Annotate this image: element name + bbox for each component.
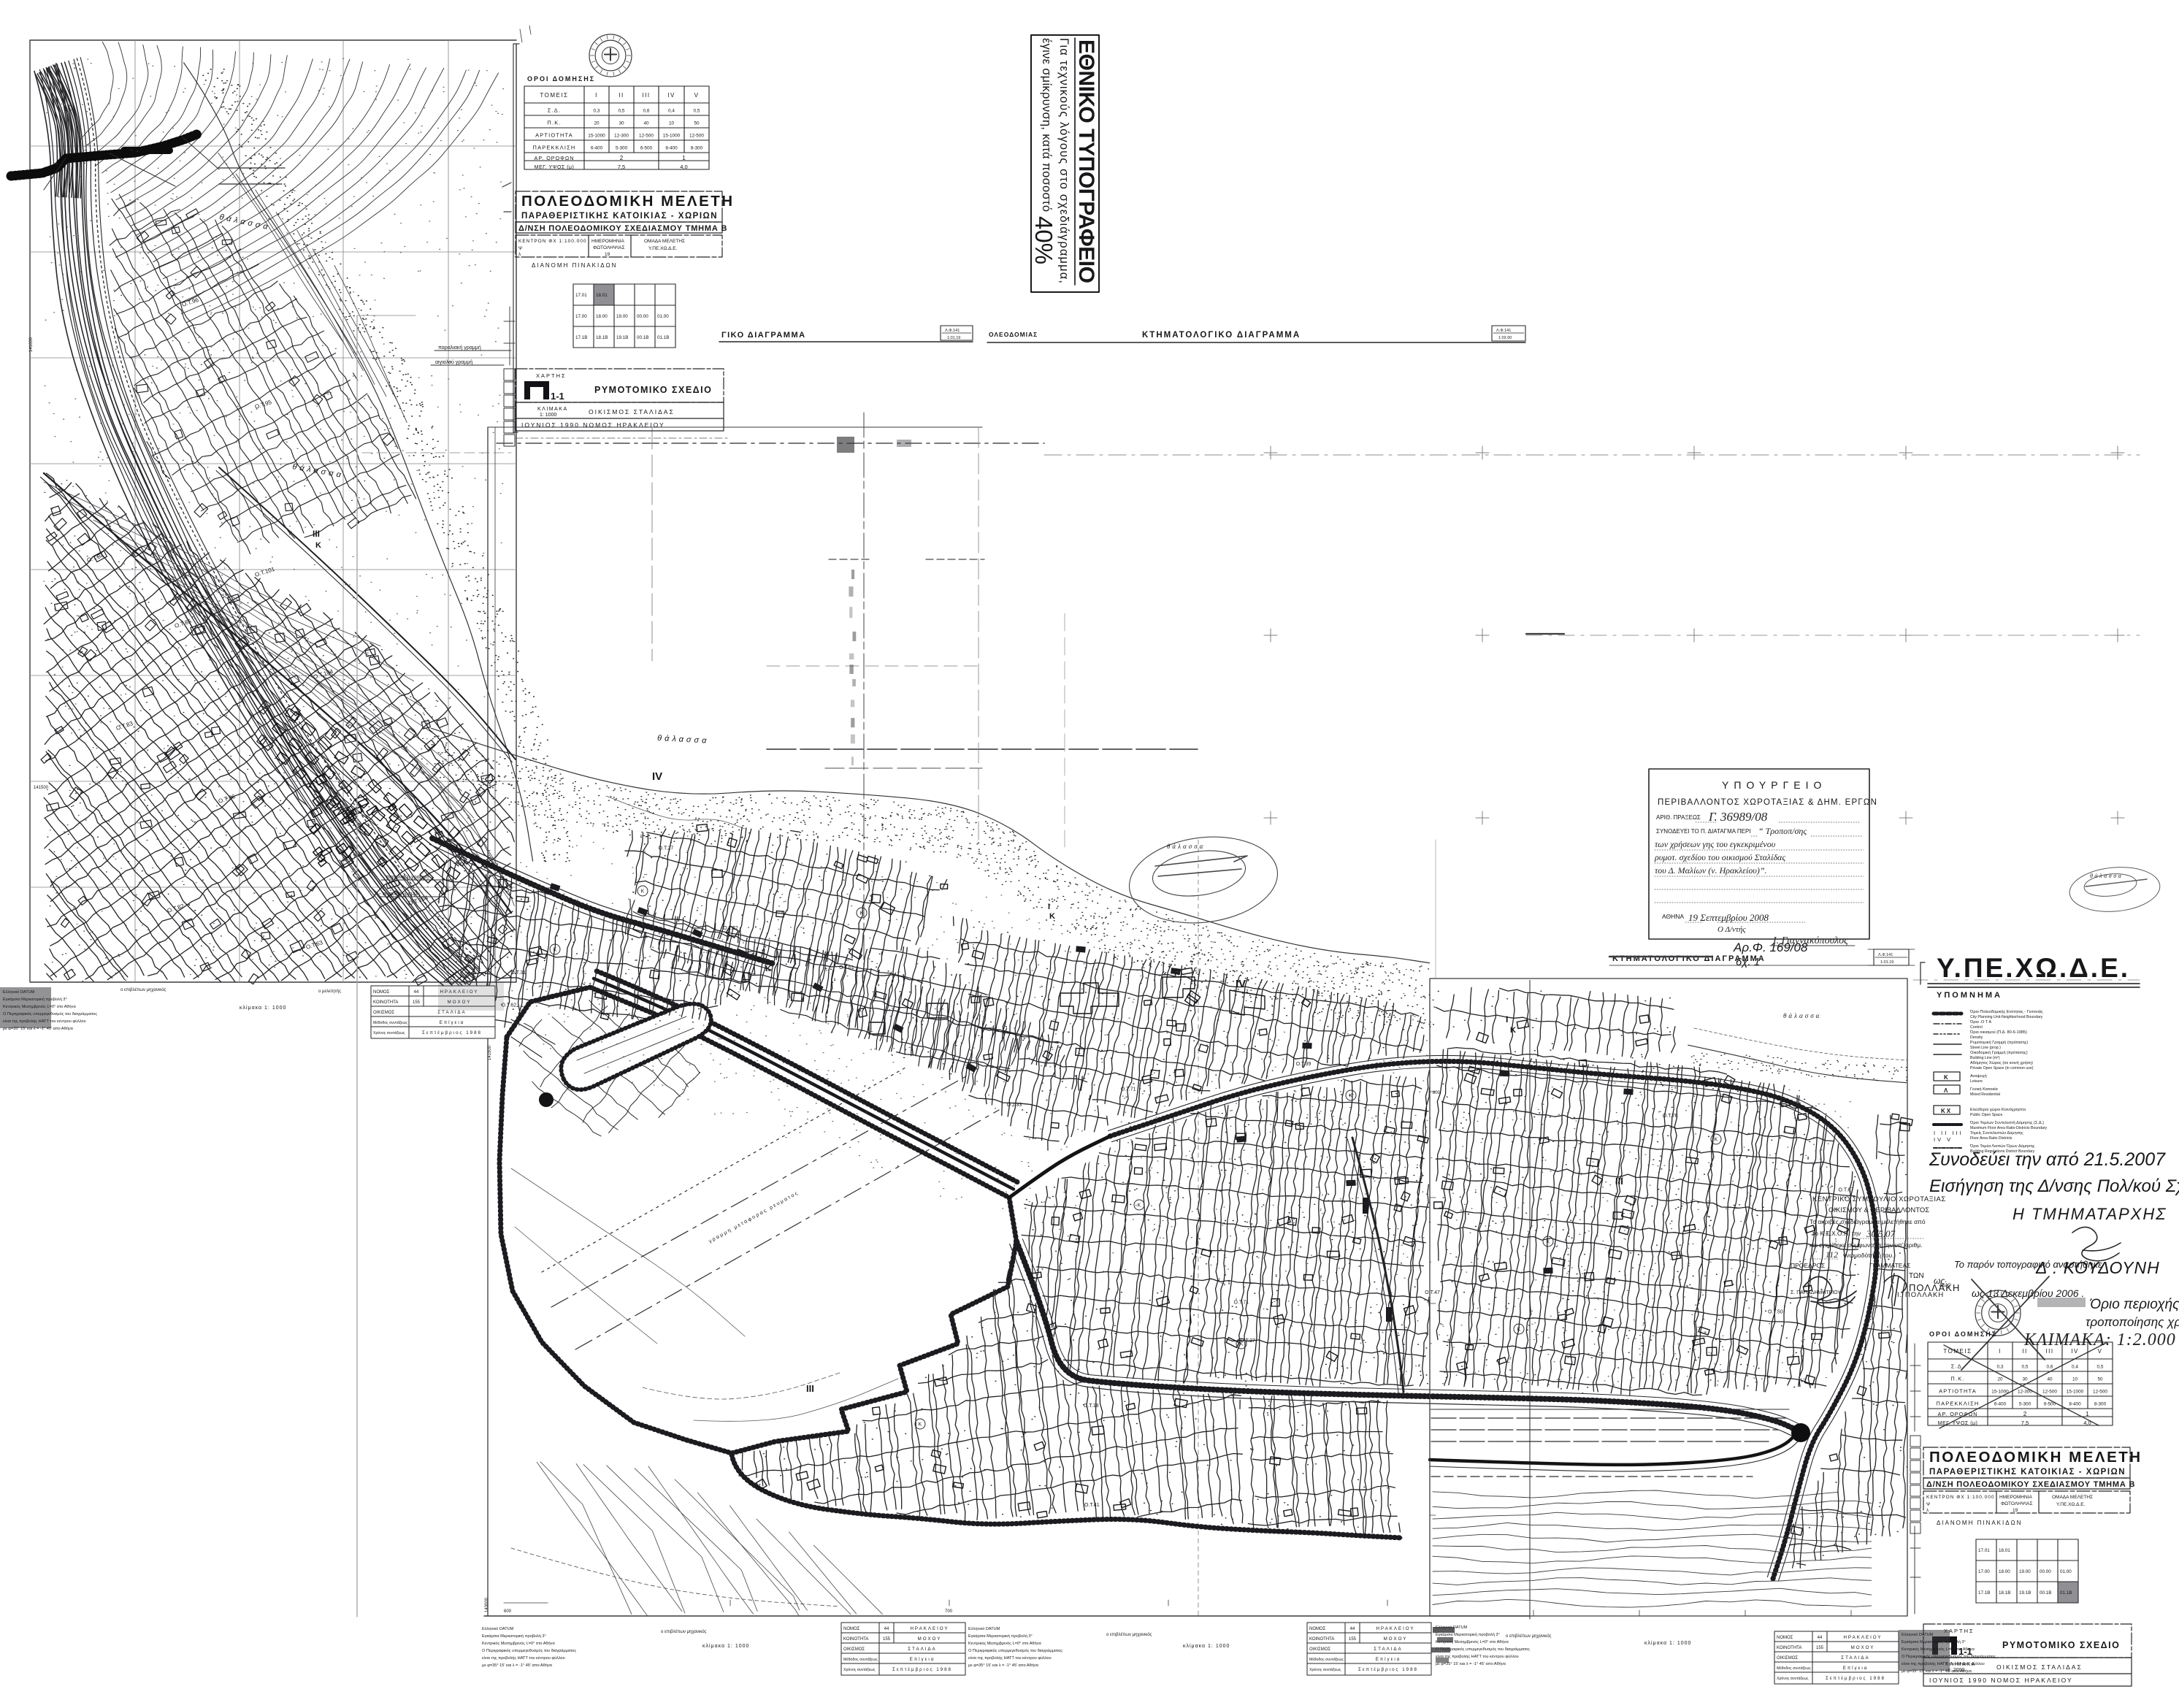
svg-text:ΝΟΜΟΣ: ΝΟΜΟΣ [1777, 1636, 1793, 1640]
svg-text:Κεντρικός Μεσημβρινός L=0° στο: Κεντρικός Μεσημβρινός L=0° στο Αθήνα [1902, 1647, 1975, 1652]
svg-text:Λ.Φ.141: Λ.Φ.141 [1496, 329, 1511, 333]
svg-text:Εγκάρσια Μερκατορική προβολή 3: Εγκάρσια Μερκατορική προβολή 3° [482, 1634, 546, 1639]
svg-text:19.00: 19.00 [616, 314, 628, 319]
svg-text:V: V [694, 92, 700, 99]
svg-text:Ο.Τ.67: Ο.Τ.67 [1839, 1188, 1854, 1193]
svg-text:Κ: Κ [1517, 1328, 1521, 1333]
svg-text:Π.Κ.: Π.Κ. [547, 120, 561, 126]
svg-text:01.00: 01.00 [657, 314, 669, 319]
svg-text:ΚΕΝΤΡΟΝ ΦΧ 1:100.000: ΚΕΝΤΡΟΝ ΦΧ 1:100.000 [1926, 1495, 1994, 1500]
svg-text:12-500: 12-500 [689, 134, 704, 139]
svg-text:0,3: 0,3 [1997, 1365, 2004, 1370]
svg-text:κλίμακα 1: 1000: κλίμακα 1: 1000 [1644, 1640, 1691, 1646]
svg-text:40: 40 [643, 121, 649, 126]
svg-text:Ο.Τ.22: Ο.Τ.22 [723, 926, 738, 931]
svg-text:Κ: Κ [1240, 1342, 1244, 1347]
svg-text:Σεπτέμβριος 1988: Σεπτέμβριος 1988 [1358, 1667, 1418, 1672]
svg-text:ΚΛΙΜΑΚΑ: 1:2.000: ΚΛΙΜΑΚΑ: 1:2.000 [2023, 1330, 2176, 1349]
svg-text:ΟΡΟΙ ΔΟΜΗΣΗΣ: ΟΡΟΙ ΔΟΜΗΣΗΣ [527, 75, 595, 83]
svg-text:ΝΟΜΟΣ: ΝΟΜΟΣ [1309, 1627, 1326, 1631]
svg-text:01.00: 01.00 [2060, 1569, 2072, 1574]
svg-text:ΟΙΚΙΣΜΟΣ: ΟΙΚΙΣΜΟΣ [843, 1647, 865, 1652]
svg-text:ΣΥΝΟΔΕΥΕΙ ΤΟ Π. ΔΙΑΤΑΓΜΑ ΠΕΡΙ: ΣΥΝΟΔΕΥΕΙ ΤΟ Π. ΔΙΑΤΑΓΜΑ ΠΕΡΙ [1656, 828, 1751, 835]
svg-text:ΚΛΙΜΑΚΑ: ΚΛΙΜΑΚΑ [537, 407, 568, 412]
svg-text:ΕΘΝΙΚΟ ΤΥΠΟΓΡΑΦΕΙΟ: ΕΘΝΙΚΟ ΤΥΠΟΓΡΑΦΕΙΟ [1074, 39, 1098, 283]
svg-text:γνωμοδότησή του.: γνωμοδότησή του. [1843, 1252, 1894, 1259]
svg-text:Ελληνικό DATUM: Ελληνικό DATUM [1902, 1632, 1934, 1637]
svg-text:Public Open Space: Public Open Space [1970, 1113, 2003, 1117]
svg-text:ΧΑΡΤΗΣ: ΧΑΡΤΗΣ [536, 372, 567, 379]
svg-text:ως: ως [1934, 1276, 1945, 1286]
svg-text:ΦΩΤΟΛΗΨΙΑΣ: ΦΩΤΟΛΗΨΙΑΣ [593, 245, 624, 250]
svg-text:0,6: 0,6 [643, 109, 650, 114]
svg-text:Κ: Κ [641, 889, 645, 895]
svg-text:Ο Περιγραφικός υπερμεγεθυσμός: Ο Περιγραφικός υπερμεγεθυσμός του διαγρά… [3, 1011, 97, 1016]
svg-text:Ο Περιγραφικός υπερμεγεθυσμός: Ο Περιγραφικός υπερμεγεθυσμός του διαγρά… [1902, 1654, 1996, 1659]
svg-text:Επίγεια: Επίγεια [440, 1020, 465, 1025]
svg-text:Ο.Τ.27: Ο.Τ.27 [659, 846, 674, 851]
svg-text:Σ.Δ.: Σ.Δ. [1951, 1363, 1964, 1370]
svg-text:17.1Β: 17.1Β [1978, 1590, 1990, 1596]
svg-text:Κεντρικός Μεσημβρινός L=0° στο: Κεντρικός Μεσημβρινός L=0° στο Αθήνα [3, 1004, 76, 1009]
svg-text:ΗΜΕΡΟΜΗΝΙΑ: ΗΜΕΡΟΜΗΝΙΑ [591, 239, 624, 244]
svg-text:Κ: Κ [919, 1422, 922, 1428]
svg-text:III: III [806, 1383, 814, 1394]
svg-text:Σ.Δ.: Σ.Δ. [548, 107, 561, 114]
svg-text:θάλασσα: θάλασσα [657, 734, 710, 746]
svg-text:18.01: 18.01 [596, 293, 608, 298]
svg-text:ΟΙΚΙΣΜΟΣ: ΟΙΚΙΣΜΟΣ [1777, 1656, 1798, 1661]
svg-text:Ο.Τ.104: Ο.Τ.104 [313, 668, 334, 681]
svg-text:18.1Β: 18.1Β [1999, 1590, 2010, 1596]
svg-text:City Planning Unit-Neighborhoo: City Planning Unit-Neighborhood Boundary [1970, 1015, 2043, 1019]
svg-text:40%: 40% [1030, 216, 1057, 264]
svg-text:Ο Δ/ντής: Ο Δ/ντής [1717, 925, 1746, 934]
svg-text:01.1Β: 01.1Β [657, 335, 669, 340]
svg-text:ΠΑΡΕΚΚΛΙΣΗ: ΠΑΡΕΚΚΛΙΣΗ [1937, 1401, 1980, 1407]
svg-text:Όριο Τομέα Λοιπών Όρων Δόμησης: Όριο Τομέα Λοιπών Όρων Δόμησης [1969, 1144, 2035, 1149]
svg-text:18.00: 18.00 [1999, 1569, 2010, 1574]
svg-text:Ι ΙΙ ΙΙΙ: Ι ΙΙ ΙΙΙ [1934, 1130, 1964, 1136]
svg-text:ΔΙΑΝΟΜΗ ΠΙΝΑΚΙΔΩΝ: ΔΙΑΝΟΜΗ ΠΙΝΑΚΙΔΩΝ [1937, 1520, 2022, 1526]
svg-text:Κ: Κ [1547, 1240, 1550, 1245]
svg-text:ΟΙΚΙΣΜΟΣ: ΟΙΚΙΣΜΟΣ [373, 1011, 394, 1015]
svg-text:Χρόνος συντάξεως: Χρόνος συντάξεως [843, 1667, 876, 1672]
svg-text:6-500: 6-500 [2044, 1402, 2056, 1407]
svg-text:Ελληνικό DATUM: Ελληνικό DATUM [3, 989, 35, 995]
svg-text:παραλιακή γραμμή: παραλιακή γραμμή [386, 875, 429, 880]
svg-text:Private Open Space (in common: Private Open Space (in common use) [1970, 1066, 2034, 1071]
svg-text:Ο.Τ.82: Ο.Τ.82 [166, 903, 185, 914]
svg-text:Σεπτέμβριος 1988: Σεπτέμβριος 1988 [892, 1667, 952, 1672]
svg-text:ΑΡΤΙΟΤΗΤΑ: ΑΡΤΙΟΤΗΤΑ [1939, 1388, 1977, 1395]
svg-text:Μέθοδος συντάξεως: Μέθοδος συντάξεως [373, 1020, 407, 1025]
svg-text:ΟΜΑΔΑ ΜΕΛΕΤΗΣ: ΟΜΑΔΑ ΜΕΛΕΤΗΣ [2052, 1495, 2093, 1500]
svg-text:40: 40 [2047, 1377, 2053, 1382]
svg-text:IV: IV [2071, 1348, 2079, 1355]
svg-text:1:02.00: 1:02.00 [1498, 336, 1512, 340]
svg-text:Ο Περιγραφικός υπερμεγεθυσμός: Ο Περιγραφικός υπερμεγεθυσμός του διαγρά… [968, 1648, 1062, 1653]
svg-text:Εγκάρσια Μερκατορική προβολή 3: Εγκάρσια Μερκατορική προβολή 3° [1436, 1632, 1500, 1637]
svg-text:ΑΡΙΘ. ΠΡΑΞΕΩΣ: ΑΡΙΘ. ΠΡΑΞΕΩΣ [1656, 814, 1701, 821]
svg-text:Leisure: Leisure [1970, 1079, 1983, 1084]
svg-text:K: K [315, 541, 321, 550]
svg-text:Λ.Φ.141: Λ.Φ.141 [1878, 953, 1893, 957]
svg-text:Ελεύθεροι χώροι Κοινόχρηστοι: Ελεύθεροι χώροι Κοινόχρηστοι [1970, 1107, 2026, 1112]
svg-text:ΟΙΚΙΣΜΟΣ: ΟΙΚΙΣΜΟΣ [1309, 1647, 1330, 1652]
svg-text:8-400: 8-400 [2069, 1402, 2081, 1407]
svg-text:0,6: 0,6 [2047, 1365, 2053, 1370]
svg-text:IV: IV [1236, 978, 1246, 990]
svg-text:Σεπτέμβριος 1988: Σεπτέμβριος 1988 [422, 1030, 482, 1035]
svg-text:155: 155 [1816, 1646, 1824, 1650]
svg-text:Συνοδεύει την από 21.5.2007: Συνοδεύει την από 21.5.2007 [1929, 1149, 2166, 1170]
svg-text:44: 44 [1350, 1627, 1355, 1631]
svg-text:θάλασσα: θάλασσα [1783, 1012, 1821, 1019]
svg-text:Κ: Κ [1715, 1138, 1718, 1143]
svg-text:Ο.Τ.96: Ο.Τ.96 [181, 296, 200, 308]
svg-text:ΣΤΑΛΙΔΑ: ΣΤΑΛΙΔΑ [1374, 1647, 1402, 1652]
svg-text:I: I [1506, 1014, 1508, 1025]
svg-text:Η ΤΜΗΜΑΤΑΡΧΗΣ: Η ΤΜΗΜΑΤΑΡΧΗΣ [2013, 1205, 2167, 1223]
svg-text:ΦΩΤΟΛΗΨΙΑΣ: ΦΩΤΟΛΗΨΙΑΣ [2001, 1501, 2032, 1506]
svg-text:155: 155 [883, 1637, 891, 1642]
svg-text:ο επιβλέπων μηχανικός: ο επιβλέπων μηχανικός [120, 987, 166, 992]
svg-text:19.1Β: 19.1Β [616, 335, 628, 340]
svg-text:0,5: 0,5 [694, 109, 700, 114]
svg-text:Εισήγηση της Δ/νσης Πολ/κού: Εισήγηση της Δ/νσης Πολ/κού Σχ/σμ [1929, 1176, 2179, 1196]
svg-text:Λ.Φ.141: Λ.Φ.141 [945, 329, 960, 333]
svg-text:Μέθοδος συντάξεως: Μέθοδος συντάξεως [1309, 1657, 1344, 1662]
svg-text:112: 112 [1826, 1249, 1838, 1260]
svg-text:700: 700 [945, 1609, 953, 1614]
svg-text:Κ: Κ [860, 911, 864, 916]
svg-text:Ο.Τ.50: Ο.Τ.50 [1768, 1310, 1783, 1315]
svg-text:141000: 141000 [29, 337, 34, 352]
svg-text:ρυμοτ. σχεδίου του οικισμού Στ: ρυμοτ. σχεδίου του οικισμού Σταλίδας [1654, 852, 1785, 862]
svg-text:ΠΡΟΕΔΡΟΣ: ΠΡΟΕΔΡΟΣ [1791, 1262, 1825, 1269]
svg-text:01.1Β: 01.1Β [2060, 1590, 2072, 1596]
svg-text:20: 20 [594, 121, 600, 126]
svg-text:ΟΙΚΙΣΜΟΣ ΣΤΑΛΙΔΑΣ: ΟΙΚΙΣΜΟΣ ΣΤΑΛΙΔΑΣ [589, 408, 675, 415]
svg-text:30: 30 [619, 121, 624, 126]
svg-text:Ο.Τ.18: Ο.Τ.18 [1084, 1403, 1099, 1409]
svg-text:ΙV V: ΙV V [1934, 1136, 1953, 1143]
svg-text:III: III [642, 92, 650, 99]
svg-text:ο επιβλέπων μηχανικός: ο επιβλέπων μηχανικός [1506, 1634, 1552, 1639]
svg-text:Το παρόν τοπογραφικό αναρτή: Το παρόν τοπογραφικό αναρτήθηκε [1954, 1259, 2102, 1270]
svg-text:ΑΡ. ΟΡΟΦΩΝ: ΑΡ. ΟΡΟΦΩΝ [1938, 1411, 1978, 1417]
svg-text:ΣΤΑΛΙΔΑ: ΣΤΑΛΙΔΑ [908, 1647, 936, 1652]
svg-text:Ο.Τ.95: Ο.Τ.95 [254, 399, 273, 410]
svg-text:44: 44 [884, 1627, 889, 1631]
svg-text:30.5.07: 30.5.07 [1866, 1228, 1896, 1239]
svg-text:1:01.19: 1:01.19 [1880, 960, 1893, 965]
svg-text:Αδόμητος Χώρος (σε κοινή χρήση: Αδόμητος Χώρος (σε κοινή χρήση) [1970, 1060, 2033, 1065]
svg-text:Ο.Τ.71: Ο.Τ.71 [1121, 1087, 1136, 1092]
svg-text:ΚΕΝΤΡΟΝ ΦΧ 1:100.000: ΚΕΝΤΡΟΝ ΦΧ 1:100.000 [518, 239, 586, 244]
svg-text:10: 10 [669, 121, 675, 126]
svg-text:ΣΤΑΛΙΔΑ: ΣΤΑΛΙΔΑ [437, 1010, 466, 1015]
svg-text:ΥΠΟΥΡΓΕΙΟ: ΥΠΟΥΡΓΕΙΟ [1722, 779, 1826, 791]
svg-text:είναι της προβολής ΗΑΤΤ του κέ: είναι της προβολής ΗΑΤΤ του κέντρου φύλλ… [482, 1655, 565, 1661]
svg-text:Χρόνος συντάξεως: Χρόνος συντάξεως [373, 1030, 405, 1035]
svg-text:ΜΕΓ. ΥΨΟΣ (μ): ΜΕΓ. ΥΨΟΣ (μ) [535, 165, 575, 170]
svg-text:2: 2 [2023, 1411, 2027, 1417]
svg-text:0,5: 0,5 [2097, 1365, 2104, 1370]
svg-text:ΚΟΙΝΟΤΗΤΑ: ΚΟΙΝΟΤΗΤΑ [1777, 1646, 1801, 1650]
svg-text:Σ. ΠΑΠΑΔΗΜΗΤΡΙΟΥ: Σ. ΠΑΠΑΔΗΜΗΤΡΙΟΥ [1791, 1290, 1841, 1295]
svg-text:Maximum Floor Area Ratio-Distr: Maximum Floor Area Ratio-Districts Bound… [1970, 1126, 2048, 1130]
svg-text:17.1Β: 17.1Β [575, 335, 587, 340]
svg-text:7,5: 7,5 [618, 164, 626, 170]
svg-text:ΚΟΙΝΟΤΗΤΑ: ΚΟΙΝΟΤΗΤΑ [1309, 1637, 1334, 1642]
svg-text:5-300: 5-300 [616, 146, 628, 151]
svg-text:ΚΕΝΤΡΙΚΟ ΣΥΜΒΟΥΛΙΟ ΧΩΡΟΤΑΞΙΑ: ΚΕΝΤΡΙΚΟ ΣΥΜΒΟΥΛΙΟ ΧΩΡΟΤΑΞΙΑΣ [1812, 1195, 1946, 1203]
svg-text:6χ. 1: 6χ. 1 [1736, 956, 1760, 968]
svg-text:143000: 143000 [485, 1597, 489, 1612]
svg-text:ΟΙΚΙΣΜΟΣ ΣΤΑΛΙΔΑΣ: ΟΙΚΙΣΜΟΣ ΣΤΑΛΙΔΑΣ [1996, 1663, 2083, 1671]
svg-text:5-300: 5-300 [2019, 1402, 2031, 1407]
svg-text:30: 30 [2022, 1377, 2028, 1382]
svg-text:15-1000: 15-1000 [588, 134, 605, 139]
svg-text:1:01.19: 1:01.19 [947, 336, 960, 340]
svg-text:Αναψυχή: Αναψυχή [1970, 1073, 1987, 1079]
svg-text:ΙΟΥΝΙΟΣ 1990 ΝΟΜΟΣ ΗΡΑΚΛΕ: ΙΟΥΝΙΟΣ 1990 ΝΟΜΟΣ ΗΡΑΚΛΕΙΟΥ [521, 421, 665, 429]
svg-text:Ο.Τ.39: Ο.Τ.39 [1296, 1062, 1311, 1067]
svg-text:θάλασσα: θάλασσα [218, 212, 271, 232]
svg-text:ΠΑΡΕΚΚΛΙΣΗ: ΠΑΡΕΚΚΛΙΣΗ [533, 145, 576, 151]
svg-text:ΓΡΑΜΜΑΤΕΑΣ: ΓΡΑΜΜΑΤΕΑΣ [1869, 1262, 1910, 1269]
svg-text:6-400: 6-400 [1994, 1402, 2007, 1407]
svg-text:1-1: 1-1 [551, 391, 564, 402]
svg-text:ΚΤΗΜΑΤΟΛΟΓΙΚΟ ΔΙΑΓΡΑΜΜΑ: ΚΤΗΜΑΤΟΛΟΓΙΚΟ ΔΙΑΓΡΑΜΜΑ [1142, 331, 1301, 340]
svg-text:19 Σεπτεμβρίου 2008: 19 Σεπτεμβρίου 2008 [1688, 912, 1769, 923]
svg-text:IV: IV [667, 92, 675, 99]
svg-text:Ψ: Ψ [518, 246, 522, 251]
svg-text:ΗΜΕΡΟΜΗΝΙΑ: ΗΜΕΡΟΜΗΝΙΑ [1999, 1495, 2032, 1500]
svg-text:17.00: 17.00 [575, 314, 587, 319]
svg-text:Αρ.Φ. 169/08: Αρ.Φ. 169/08 [1733, 941, 1808, 954]
svg-text:Density: Density [1970, 1035, 1983, 1040]
svg-text:με φ=35° 15' και λ = -1° 45' α: με φ=35° 15' και λ = -1° 45' απο Αθήνα [482, 1663, 553, 1668]
svg-text:Δ/ΝΣΗ ΠΟΛΕΟΔΟΜΙΚΟΥ ΣΧΕΔΙΑΣΜΟΥ: Δ/ΝΣΗ ΠΟΛΕΟΔΟΜΙΚΟΥ ΣΧΕΔΙΑΣΜΟΥ ΤΜΗΜΑ Β [1926, 1480, 2135, 1489]
svg-text:1: 1 [682, 155, 686, 161]
svg-text:Ελληνικό DATUM: Ελληνικό DATUM [482, 1626, 514, 1631]
svg-text:ΜΟΧΟΥ: ΜΟΧΟΥ [1384, 1636, 1408, 1642]
svg-text:Γενική Κατοικία: Γενική Κατοικία [1970, 1087, 1998, 1092]
svg-text:Ο Περιγραφικός υπερμεγεθυσμός: Ο Περιγραφικός υπερμεγεθυσμός του διαγρά… [482, 1648, 576, 1653]
svg-text:15-1000: 15-1000 [1991, 1390, 2009, 1395]
svg-text:II: II [2022, 1348, 2027, 1355]
svg-text:Όριο .Ο Τ Α: Όριο .Ο Τ Α [1969, 1020, 1991, 1025]
svg-text:ΚΟΙΝΟΤΗΤΑ: ΚΟΙΝΟΤΗΤΑ [373, 1000, 398, 1005]
svg-text:Ο.Τ.31: Ο.Τ.31 [510, 970, 526, 976]
svg-text:0,4: 0,4 [2072, 1365, 2078, 1370]
svg-text:με φ=35° 15' και λ = -1° 45' α: με φ=35° 15' και λ = -1° 45' απο Αθήνα [1902, 1669, 1972, 1674]
svg-text:155: 155 [413, 1000, 421, 1005]
svg-text:19: 19 [605, 252, 610, 257]
svg-text:141500: 141500 [34, 786, 49, 790]
svg-text:12-500: 12-500 [2042, 1390, 2057, 1395]
svg-text:Οικοδομική Γραμμή (πρότασης): Οικοδομική Γραμμή (πρότασης) [1970, 1050, 2028, 1055]
svg-text:00.1Β: 00.1Β [2040, 1590, 2051, 1596]
svg-text:44: 44 [1818, 1636, 1823, 1640]
svg-text:K: K [1510, 1026, 1516, 1035]
svg-text:Σεπτέμβριος 1988: Σεπτέμβριος 1988 [1826, 1676, 1885, 1681]
svg-text:Υ.ΠΕ.ΧΩ.Δ.Ε.: Υ.ΠΕ.ΧΩ.Δ.Ε. [648, 246, 678, 251]
svg-text:ο επιβλέπων μηχανικός: ο επιβλέπων μηχανικός [661, 1629, 707, 1634]
svg-text:Ο.Τ.83: Ο.Τ.83 [115, 720, 134, 732]
svg-text:ΝΟΜΟΣ: ΝΟΜΟΣ [373, 990, 390, 995]
svg-text:800: 800 [1433, 1091, 1441, 1095]
svg-text:Λ: Λ [1944, 1087, 1948, 1094]
svg-text:“ Τροποπ/σης: “ Τροποπ/σης [1758, 826, 1807, 836]
svg-text:Υ.ΠΕ.ΧΩ.Δ.Ε.: Υ.ΠΕ.ΧΩ.Δ.Ε. [1937, 953, 2130, 983]
svg-text:19: 19 [2013, 1508, 2018, 1513]
svg-text:1: 1 [2086, 1411, 2089, 1417]
svg-text:Χρόνος συντάξεως: Χρόνος συντάξεως [1777, 1676, 1809, 1681]
svg-text:Για τεχνικούς λόγους στο σχεδι: Για τεχνικούς λόγους στο σχεδιάγραμμα, [1057, 38, 1071, 283]
svg-text:είναι της προβολής ΗΑΤΤ του κέ: είναι της προβολής ΗΑΤΤ του κέντρου φύλλ… [3, 1019, 86, 1024]
svg-text:Ο.Τ.71: Ο.Τ.71 [1234, 1301, 1249, 1306]
svg-text:IV: IV [652, 770, 662, 783]
svg-text:1: 1000: 1: 1000 [540, 413, 556, 418]
svg-text:Ο.Τ.101: Ο.Τ.101 [254, 566, 276, 578]
svg-text:ΠΕΡΙΒΑΛΛΟΝΤΟΣ ΧΩΡΟΤΑΞΙΑΣ &: ΠΕΡΙΒΑΛΛΟΝΤΟΣ ΧΩΡΟΤΑΞΙΑΣ & ΔΗΜ. ΕΡΓΩΝ [1658, 798, 1877, 807]
svg-text:I: I [1048, 903, 1050, 911]
svg-text:ΠΟΛΕΟΔΟΜΙΚΗ ΜΕΛΕΤΗ: ΠΟΛΕΟΔΟΜΙΚΗ ΜΕΛΕΤΗ [1929, 1449, 2142, 1466]
svg-text:Γ. 36989/08: Γ. 36989/08 [1708, 810, 1768, 824]
svg-text:Εγκάρσια Μερκατορική προβολή 3: Εγκάρσια Μερκατορική προβολή 3° [968, 1634, 1033, 1639]
svg-text:Χρόνος συντάξεως: Χρόνος συντάξεως [1309, 1667, 1341, 1672]
svg-text:ΡΥΜΟΤΟΜΙΚΟ ΣΧΕΔΙΟ: ΡΥΜΟΤΟΜΙΚΟ ΣΧΕΔΙΟ [2002, 1640, 2120, 1650]
svg-text:Τομείς Συντελεστών Δόμησης: Τομείς Συντελεστών Δόμησης [1970, 1130, 2023, 1136]
svg-text:θάλασσα: θάλασσα [291, 462, 344, 480]
svg-text:8-400: 8-400 [665, 146, 678, 151]
svg-text:ΡΥΜΟΤΟΜΙΚΟ ΣΧΕΔΙΟ: ΡΥΜΟΤΟΜΙΚΟ ΣΧΕΔΙΟ [594, 385, 712, 395]
svg-text:Κ: Κ [554, 948, 557, 953]
svg-text:ΓΙΚΟ ΔΙΑΓΡΑΜΜΑ: ΓΙΚΟ ΔΙΑΓΡΑΜΜΑ [721, 331, 806, 340]
svg-text:ΥΠΟΜΝΗΜΑ: ΥΠΟΜΝΗΜΑ [1937, 991, 2002, 1000]
svg-text:17.01: 17.01 [1978, 1548, 1990, 1553]
svg-text:ΠΑΡΑΘΕΡΙΣΤΙΚΗΣ ΚΑΤΟΙΚΙΑΣ - ΧΩ: ΠΑΡΑΘΕΡΙΣΤΙΚΗΣ ΚΑΤΟΙΚΙΑΣ - ΧΩΡΙΩΝ [1929, 1468, 2126, 1477]
svg-text:κλίμακα 1: 1000: κλίμακα 1: 1000 [702, 1643, 749, 1649]
svg-text:λ: λ [1926, 1508, 1929, 1513]
svg-text:18.00: 18.00 [596, 314, 608, 319]
svg-text:θάλασσα: θάλασσα [2090, 873, 2123, 879]
svg-text:Κεντρικός Μεσημβρινός L=0° στο: Κεντρικός Μεσημβρινός L=0° στο Αθήνα [482, 1641, 555, 1646]
svg-text:0,3: 0,3 [594, 109, 600, 114]
svg-text:Επίγεια: Επίγεια [910, 1657, 935, 1662]
svg-text:12-500: 12-500 [639, 134, 654, 139]
svg-text:θάλασσα: θάλασσα [1167, 843, 1205, 850]
svg-text:Ο.Τ.85: Ο.Τ.85 [174, 618, 193, 629]
svg-text:Όριο Τομέων Συντελεστή Δόμησης: Όριο Τομέων Συντελεστή Δόμησης (Σ.Δ.) [1969, 1120, 2044, 1125]
svg-text:10: 10 [2072, 1377, 2078, 1382]
svg-text:ΟΙΚΙΣΜΟΥ & ΠΕΡΙΒΑΛΛΟΝΤΟΣ: ΟΙΚΙΣΜΟΥ & ΠΕΡΙΒΑΛΛΟΝΤΟΣ [1828, 1206, 1929, 1214]
svg-text:ΜΟΧΟΥ: ΜΟΧΟΥ [1851, 1645, 1875, 1650]
svg-text:ΠΑΡΑΘΕΡΙΣΤΙΚΗΣ ΚΑΤΟΙΚΙΑΣ - ΧΩ: ΠΑΡΑΘΕΡΙΣΤΙΚΗΣ ΚΑΤΟΙΚΙΑΣ - ΧΩΡΙΩΝ [521, 212, 718, 221]
svg-text:Ρυμοτομική Γραμμή (πρότασης): Ρυμοτομική Γραμμή (πρότασης) [1970, 1040, 2028, 1045]
svg-text:ΟΜΑΔΑ ΜΕΛΕΤΗΣ: ΟΜΑΔΑ ΜΕΛΕΤΗΣ [644, 239, 685, 244]
svg-text:V: V [2098, 1348, 2103, 1355]
svg-text:Building Line (m²): Building Line (m²) [1970, 1056, 2000, 1060]
svg-text:Κ: Κ [1944, 1074, 1948, 1081]
svg-text:Μέθοδος συντάξεως: Μέθοδος συντάξεως [1777, 1666, 1811, 1671]
svg-text:και εγκρίθηκε σύμφωνα με την υ: και εγκρίθηκε σύμφωνα με την υπ’ αριθμ. [1810, 1241, 1922, 1249]
svg-text:6-400: 6-400 [591, 146, 603, 151]
svg-text:Κ: Κ [1138, 1203, 1141, 1209]
svg-text:Επίγεια: Επίγεια [1376, 1657, 1401, 1662]
svg-text:7,5: 7,5 [2021, 1420, 2029, 1426]
svg-text:Control: Control [1970, 1025, 1983, 1030]
svg-text:15-1000: 15-1000 [2067, 1390, 2084, 1395]
svg-text:19.00: 19.00 [2019, 1569, 2031, 1574]
svg-text:50: 50 [694, 121, 700, 126]
svg-text:Π.Κ.: Π.Κ. [1950, 1376, 1964, 1382]
svg-text:κλίμακα 1: 1000: κλίμακα 1: 1000 [240, 1005, 286, 1011]
svg-text:00.1Β: 00.1Β [637, 335, 648, 340]
svg-text:2: 2 [620, 155, 624, 161]
svg-text:0,4: 0,4 [668, 109, 675, 114]
svg-text:8-300: 8-300 [691, 146, 703, 151]
svg-text:με φ=35° 15' και λ = -1° 45' α: με φ=35° 15' και λ = -1° 45' απο Αθήνα [3, 1026, 74, 1031]
svg-text:ο επιβλέπων μηχανικός: ο επιβλέπων μηχανικός [1106, 1632, 1152, 1637]
svg-text:με φ=35° 15' και λ = -1° 45' α: με φ=35° 15' και λ = -1° 45' απο Αθήνα [968, 1663, 1039, 1668]
svg-text:19.1Β: 19.1Β [2019, 1590, 2031, 1596]
svg-text:III: III [1615, 1176, 1623, 1187]
svg-text:Το ακριβές σχεδιάγραμμα μελετή: Το ακριβές σχεδιάγραμμα μελετήθηκε από [1810, 1218, 1926, 1225]
svg-text:ΑΘΗΝΑ: ΑΘΗΝΑ [1662, 913, 1684, 920]
svg-text:Επίγεια: Επίγεια [1843, 1666, 1869, 1671]
svg-text:50: 50 [2097, 1377, 2103, 1382]
svg-text:Μέθοδος συντάξεως: Μέθοδος συντάξεως [843, 1657, 878, 1662]
svg-text:ΙΟΥΝΙΟΣ 1990 ΝΟΜΟΣ ΗΡΑΚΛΕ: ΙΟΥΝΙΟΣ 1990 ΝΟΜΟΣ ΗΡΑΚΛΕΙΟΥ [1929, 1677, 2073, 1684]
svg-text:κλίμακα 1: 1000: κλίμακα 1: 1000 [1183, 1643, 1230, 1649]
svg-text:0,5: 0,5 [2022, 1365, 2029, 1370]
svg-text:ΝΟΜΟΣ: ΝΟΜΟΣ [843, 1627, 860, 1631]
svg-text:Ο.Τ.41: Ο.Τ.41 [1084, 1503, 1100, 1508]
svg-text:12-300: 12-300 [614, 134, 629, 139]
svg-text:ΚΧ: ΚΧ [1941, 1108, 1952, 1114]
svg-text:17.01: 17.01 [575, 293, 587, 298]
svg-text:Mixed Residential: Mixed Residential [1970, 1092, 2000, 1097]
svg-text:18.1Β: 18.1Β [596, 335, 608, 340]
svg-text:είναι της προβολής ΗΑΤΤ του κέ: είναι της προβολής ΗΑΤΤ του κέντρου φύλλ… [1902, 1661, 1985, 1666]
svg-text:12-300: 12-300 [2018, 1390, 2032, 1395]
svg-text:Floor Area Ratio Districts: Floor Area Ratio Districts [1970, 1136, 2013, 1141]
svg-text:15-1000: 15-1000 [663, 134, 681, 139]
svg-text:141500: 141500 [488, 1045, 492, 1060]
svg-text:ΤΩΝ: ΤΩΝ [1909, 1272, 1924, 1280]
svg-text:ΜΕΓ. ΥΨΟΣ (μ): ΜΕΓ. ΥΨΟΣ (μ) [1938, 1421, 1978, 1426]
svg-text:Όριο οικισμού (Π.Δ. 80-6-198: Όριο οικισμού (Π.Δ. 80-6-1985) [1969, 1030, 2027, 1035]
svg-text:44: 44 [414, 990, 419, 995]
svg-text:00.00: 00.00 [637, 314, 648, 319]
svg-text:ΠΟΛΕΟΔΟΜΙΚΗ ΜΕΛΕΤΗ: ΠΟΛΕΟΔΟΜΙΚΗ ΜΕΛΕΤΗ [521, 193, 735, 210]
svg-text:τροποποίησης χρήσε: τροποποίησης χρήσε [2086, 1315, 2179, 1329]
svg-text:ΤΟΜΕΙΣ: ΤΟΜΕΙΣ [1943, 1348, 1972, 1355]
svg-text:8-300: 8-300 [2094, 1402, 2107, 1407]
svg-text:ΚΟΙΝΟΤΗΤΑ: ΚΟΙΝΟΤΗΤΑ [843, 1637, 868, 1642]
svg-text:III: III [2045, 1348, 2053, 1355]
svg-text:του Δ. Μαλίων (ν. Ηρακλείου)”.: του Δ. Μαλίων (ν. Ηρακλείου)”. [1655, 865, 1767, 876]
svg-text:6-500: 6-500 [640, 146, 653, 151]
svg-text:Εγκάρσια Μερκατορική προβολή 3: Εγκάρσια Μερκατορική προβολή 3° [3, 997, 67, 1002]
svg-text:Ο.Τ.33: Ο.Τ.33 [1007, 1103, 1022, 1108]
svg-text:ΤΟΜΕΙΣ: ΤΟΜΕΙΣ [540, 92, 568, 99]
